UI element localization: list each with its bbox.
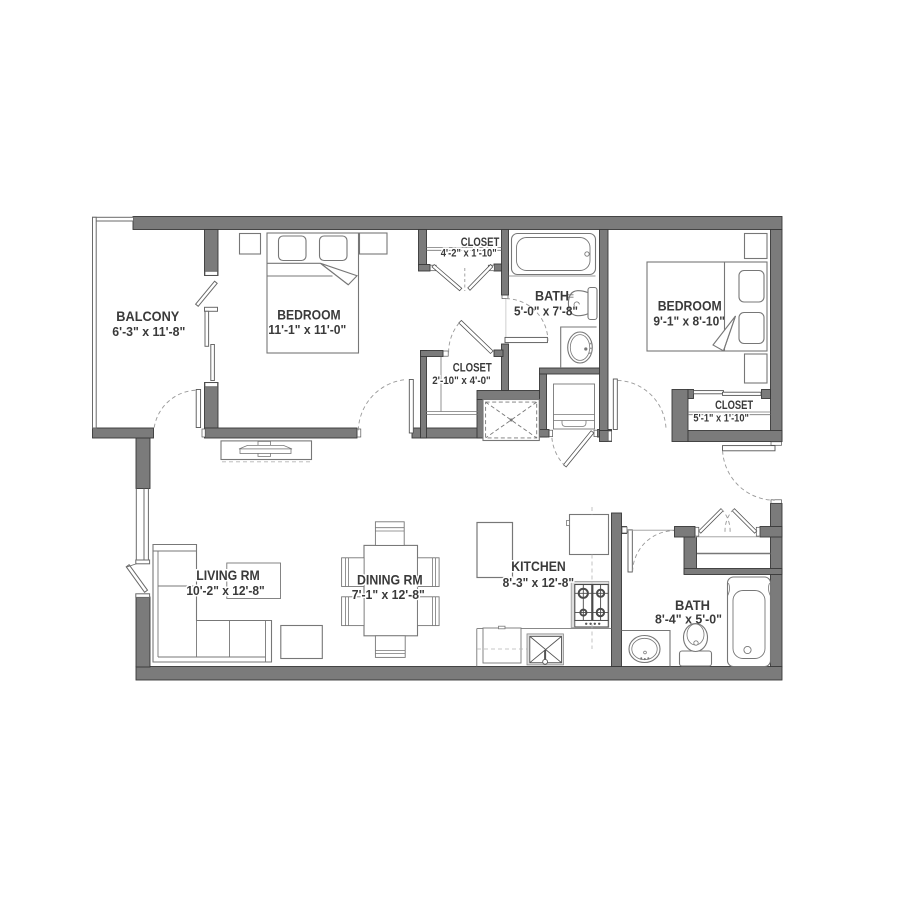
svg-text:8'-3" x 12'-8": 8'-3" x 12'-8" <box>503 576 574 590</box>
svg-text:KITCHEN: KITCHEN <box>511 559 565 574</box>
svg-text:BATH: BATH <box>535 289 569 304</box>
svg-text:9'-1" x 8'-10": 9'-1" x 8'-10" <box>653 315 725 329</box>
svg-text:BALCONY: BALCONY <box>116 309 179 324</box>
svg-text:BEDROOM: BEDROOM <box>658 299 722 314</box>
svg-text:LIVING RM: LIVING RM <box>196 568 260 583</box>
svg-text:10'-2" x 12'-8": 10'-2" x 12'-8" <box>186 584 264 598</box>
svg-text:8'-4" x 5'-0": 8'-4" x 5'-0" <box>655 613 722 627</box>
svg-text:CLOSET: CLOSET <box>715 400 753 412</box>
svg-text:7'-1" x 12'-8": 7'-1" x 12'-8" <box>352 588 425 602</box>
svg-text:6'-3" x 11'-8": 6'-3" x 11'-8" <box>112 325 185 339</box>
svg-text:CLOSET: CLOSET <box>453 363 492 375</box>
svg-text:5'-0" x 7'-8": 5'-0" x 7'-8" <box>514 305 578 319</box>
svg-text:11'-1" x 11'-0": 11'-1" x 11'-0" <box>268 323 346 337</box>
svg-text:5'-1" x 1'-10": 5'-1" x 1'-10" <box>693 413 749 425</box>
svg-text:BEDROOM: BEDROOM <box>277 308 341 323</box>
svg-text:BATH: BATH <box>675 598 710 613</box>
svg-text:4'-2" x 1'-10": 4'-2" x 1'-10" <box>441 248 497 260</box>
svg-text:DINING RM: DINING RM <box>357 573 423 588</box>
svg-text:2'-10" x 4'-0": 2'-10" x 4'-0" <box>432 375 491 387</box>
